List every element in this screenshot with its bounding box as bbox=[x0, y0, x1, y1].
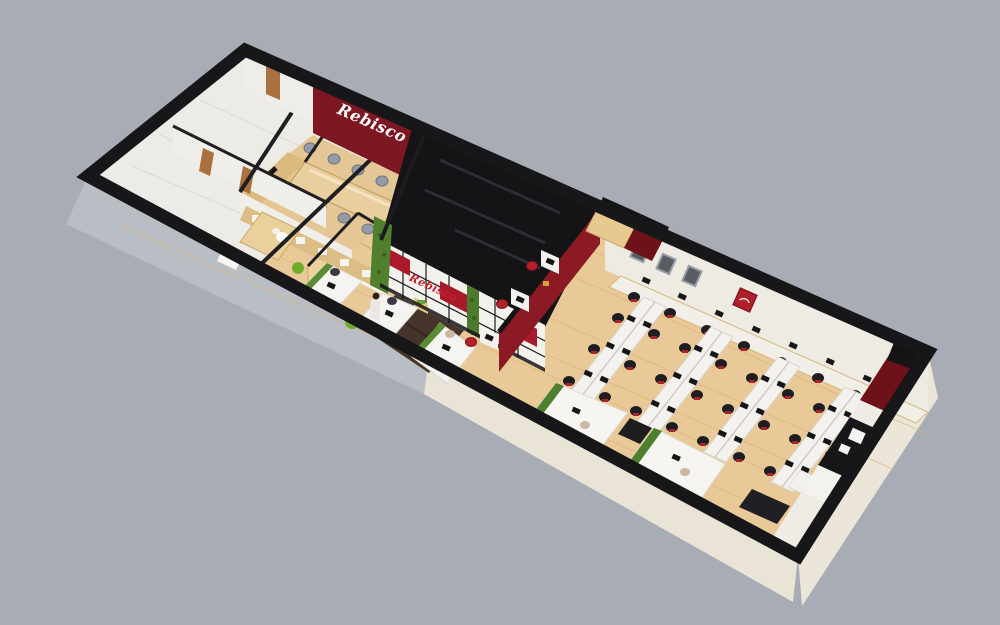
render-canvas: Rebisco bbox=[0, 0, 1000, 625]
plant bbox=[292, 262, 304, 274]
floorplan-render: Rebisco bbox=[0, 0, 1000, 625]
